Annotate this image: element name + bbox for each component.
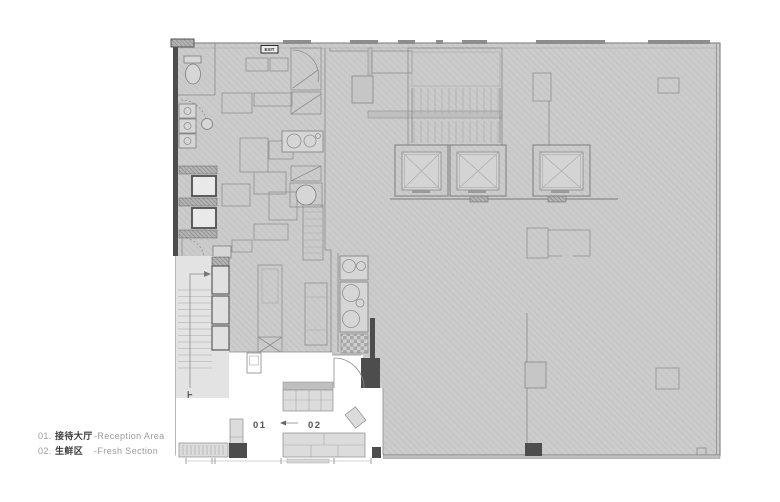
wall-stub <box>370 318 375 358</box>
legend-english-label: -Fresh Section <box>94 444 158 459</box>
kettle <box>296 185 316 205</box>
shelf-grid <box>283 390 333 411</box>
legend-item-fresh: 02. 生鲜区 -Fresh Section <box>38 444 165 459</box>
exit-sign: EXIT <box>261 46 278 54</box>
wall-block <box>212 257 229 266</box>
wall-block <box>548 196 566 202</box>
wall-block <box>229 443 247 458</box>
door-sill <box>551 190 569 193</box>
legend-number: 02. <box>38 444 55 459</box>
sink <box>202 119 213 130</box>
shaft-cell <box>212 296 229 324</box>
room-label-01: 01 <box>253 420 267 431</box>
closet-box <box>192 208 216 228</box>
floor-plan-canvas: 上 01 02 <box>0 0 780 502</box>
closet-box <box>192 176 216 196</box>
exit-sign-label: EXIT <box>264 47 274 52</box>
floor-plan-page: 上 01 02 <box>0 0 780 502</box>
toilet <box>186 64 201 84</box>
column <box>352 76 373 103</box>
elevator-shaft-2 <box>450 145 506 196</box>
wall-strip <box>179 198 217 206</box>
toilet-tank <box>184 56 201 63</box>
stove-unit <box>340 256 368 280</box>
wall-block <box>470 196 488 202</box>
room-label-02: 02 <box>308 420 322 431</box>
wall-strip <box>179 166 217 174</box>
door-sill <box>468 190 486 193</box>
floor-mat <box>341 334 368 353</box>
counter-cell <box>179 104 196 118</box>
bottom-wall <box>383 455 720 459</box>
legend-item-reception: 01. 接待大厅 -Reception Area <box>38 429 165 444</box>
door-nook-floor <box>332 355 363 388</box>
counter-cell <box>179 119 196 133</box>
corner-wall-block <box>171 39 194 47</box>
legend-english-label: -Reception Area <box>94 429 165 444</box>
legend: 01. 接待大厅 -Reception Area 02. 生鲜区 -Fresh … <box>38 429 165 459</box>
entry-door-mark <box>287 459 329 463</box>
legend-number: 01. <box>38 429 55 444</box>
column <box>525 362 546 388</box>
shaft-cell <box>212 326 229 350</box>
back-counter <box>283 382 333 390</box>
wall-strip <box>179 230 217 238</box>
legend-chinese-label: 生鲜区 <box>55 444 94 459</box>
elevator-shaft-3 <box>533 145 590 196</box>
window-shelf <box>179 443 228 457</box>
wall-block <box>372 447 381 458</box>
counter-cell <box>179 134 196 148</box>
legend-chinese-label: 接待大厅 <box>55 429 94 444</box>
shaft-cell <box>212 266 229 294</box>
elevator-shaft-1 <box>395 145 448 196</box>
wall-end-block <box>525 443 542 456</box>
door-sill <box>412 190 430 193</box>
left-wall <box>173 44 178 256</box>
